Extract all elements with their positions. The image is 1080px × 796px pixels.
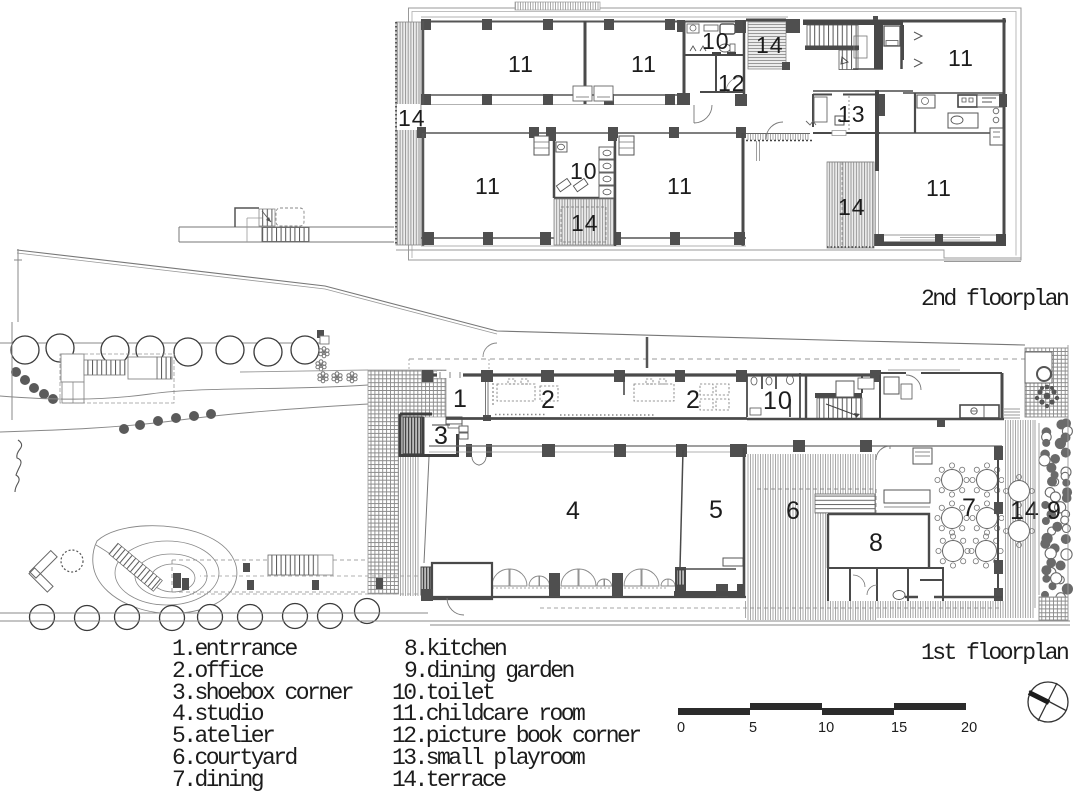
svg-text:10: 10	[702, 28, 730, 54]
svg-text:2nd floorplan: 2nd floorplan	[921, 286, 1068, 312]
svg-text:7.dining: 7.dining	[172, 767, 263, 793]
svg-text:8: 8	[869, 529, 884, 557]
svg-text:6: 6	[786, 497, 801, 525]
svg-text:5: 5	[709, 496, 724, 524]
svg-text:14.terrace: 14.terrace	[392, 767, 506, 793]
svg-text:4: 4	[566, 497, 581, 525]
svg-text:14: 14	[838, 194, 866, 220]
svg-text:1st floorplan: 1st floorplan	[921, 640, 1068, 666]
svg-text:12: 12	[718, 70, 746, 96]
svg-text:11: 11	[926, 175, 952, 201]
svg-text:20: 20	[961, 720, 977, 736]
svg-text:10: 10	[570, 158, 598, 184]
svg-text:11: 11	[508, 51, 534, 77]
svg-text:9: 9	[1047, 497, 1062, 525]
svg-text:5: 5	[749, 720, 757, 736]
svg-text:10: 10	[818, 720, 834, 736]
svg-text:14: 14	[571, 210, 599, 236]
svg-text:11: 11	[631, 51, 657, 77]
svg-text:11: 11	[948, 45, 974, 71]
svg-text:11: 11	[667, 173, 693, 199]
svg-text:2: 2	[686, 386, 701, 414]
svg-text:2: 2	[541, 386, 556, 414]
svg-text:0: 0	[677, 720, 685, 736]
svg-text:11: 11	[475, 173, 501, 199]
svg-text:15: 15	[891, 720, 907, 736]
svg-text:14: 14	[756, 32, 784, 58]
svg-text:1: 1	[453, 385, 468, 413]
svg-text:13: 13	[838, 101, 866, 127]
svg-text:10: 10	[763, 387, 793, 415]
svg-text:7: 7	[962, 494, 977, 522]
